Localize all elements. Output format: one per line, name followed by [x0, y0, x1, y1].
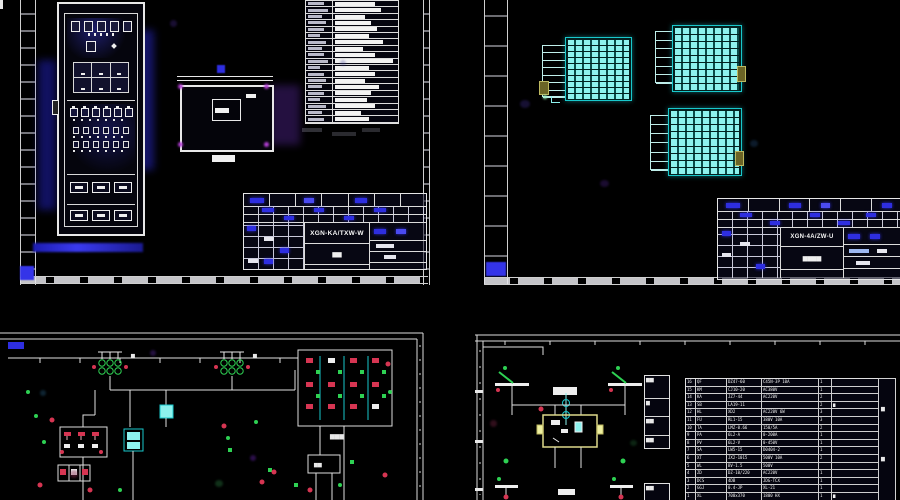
- bom-cell: 3: [686, 478, 695, 485]
- bom-cell: JDG-TCX: [762, 478, 818, 485]
- revision-thin-row: [244, 207, 426, 215]
- switch-unit: [70, 108, 78, 117]
- drawing-model-number: XGN-4A/ZW-U: [781, 228, 843, 247]
- side-cell: ▆▆: [645, 376, 669, 399]
- bom-cell: 2: [819, 425, 831, 432]
- noise-speckle: [600, 180, 609, 187]
- bom-cell: 700x370: [727, 493, 761, 500]
- wire-ref-cell: [306, 84, 333, 89]
- bom-cell: DZ-10/220: [727, 470, 761, 477]
- terminal-table-3[interactable]: [668, 108, 742, 176]
- red-dot: [539, 407, 544, 412]
- sheet-control-schematic[interactable]: ▆ ▆: [0, 330, 445, 500]
- side-cell: ▆▆: [645, 484, 669, 500]
- sheet1-bottom-border: [20, 276, 428, 284]
- vent-slot: [114, 210, 132, 221]
- bracket-lines: [512, 405, 625, 415]
- wire-ref-cell: [306, 91, 333, 96]
- switch-unit: [114, 108, 122, 117]
- bom-cell: JX2-1015: [727, 455, 761, 462]
- bom-cell: AC220V: [762, 394, 818, 401]
- noise-speckle: [250, 455, 256, 461]
- bom-cell: 1: [686, 493, 695, 500]
- panel-door-detail[interactable]: [180, 85, 274, 152]
- bom-cell: C45N-3P 10A: [762, 379, 818, 386]
- terminal-aux-row: [656, 67, 673, 76]
- wire-ref-cell: [306, 39, 333, 44]
- switch-unit: [125, 108, 133, 117]
- wire-value-bar: [335, 98, 367, 102]
- bom-cell: 1: [819, 493, 831, 500]
- bom-cell: RL1-15: [727, 417, 761, 424]
- door-label: [215, 108, 229, 113]
- bom-cell: [832, 387, 878, 394]
- bom-cell: [832, 417, 878, 424]
- faint-note: [362, 128, 380, 132]
- mini-breaker: [113, 127, 119, 134]
- door-blue-square: [217, 65, 225, 73]
- label-box-text: ▆▆: [313, 462, 322, 468]
- noise-speckle: [40, 390, 46, 396]
- wire-value-bar: [335, 91, 371, 95]
- bom-cell: DZ47-60: [727, 379, 761, 386]
- terminal-row: [568, 94, 629, 99]
- bom-cell: 3: [819, 409, 831, 416]
- bom-cell: [832, 409, 878, 416]
- wire-value-bar: [335, 34, 369, 38]
- bus-rail: [8, 358, 298, 427]
- bom-cell: 1: [819, 485, 831, 492]
- bom-cell: 5: [686, 463, 695, 470]
- strip-cell: ▆: [881, 457, 885, 462]
- bom-cell: [832, 485, 878, 492]
- bom-cell: KA: [696, 394, 726, 401]
- yellow-terminal-tab: [735, 151, 744, 166]
- bom-cell: BV-1.5: [727, 463, 761, 470]
- terminal-aux-column: [650, 115, 670, 170]
- magenta-sparkle: [178, 84, 183, 89]
- bom-cell: 500V: [762, 463, 818, 470]
- noise-speckle: [170, 20, 177, 27]
- noise-speckle: [490, 420, 497, 427]
- wire-value-bar: [335, 72, 375, 76]
- bom-cell: [762, 402, 818, 409]
- bom-cell: GGJ: [696, 485, 726, 492]
- noise-speckle: [340, 60, 346, 66]
- sheet-terminal-arrangement[interactable]: XGN-4A/ZW-U ▆▆▆▆: [455, 0, 900, 290]
- bom-cell: 11: [686, 417, 695, 424]
- terminal-row: [675, 28, 739, 34]
- title-right-grid: [370, 223, 426, 269]
- bom-cell: PA: [696, 432, 726, 439]
- green-dot: [504, 459, 509, 464]
- mini-breaker: [93, 141, 99, 148]
- terminal-aux-row: [543, 61, 566, 68]
- cabinet-handle: [52, 100, 59, 115]
- bom-cell: AC380V: [762, 387, 818, 394]
- panel-meter: [92, 63, 109, 77]
- indicator-lamp: [110, 21, 119, 32]
- vent-slot: [92, 210, 110, 221]
- bom-cell: ZD: [696, 470, 726, 477]
- wire-value-bar: [335, 15, 365, 19]
- cabinet-floor-bar: [33, 243, 143, 252]
- red-dot: [92, 365, 96, 369]
- terminal-aux-row: [651, 125, 669, 134]
- bom-cell: 1: [819, 387, 831, 394]
- wire-value-bar: [335, 40, 383, 44]
- green-dot: [621, 459, 626, 464]
- drawing-subtitle: ▆▆: [305, 244, 369, 265]
- bom-table[interactable]: 16QFDZ47-60C45N-3P 10A115KMCJ10-20AC380V…: [685, 378, 879, 500]
- terminal-row: [675, 84, 739, 90]
- indicator-lamp: [97, 21, 106, 32]
- drawing-subtitle: ▆▆▆▆: [781, 247, 843, 270]
- bom-cell: [832, 463, 878, 470]
- bom-cell: 1: [819, 440, 831, 447]
- noise-speckle: [520, 100, 530, 108]
- wire-ref-cell: [306, 116, 333, 121]
- bom-cell: 13: [686, 402, 695, 409]
- cabinet-indicator-section: [67, 18, 135, 58]
- bom-cell: XL: [696, 493, 726, 500]
- bom-cell: 2: [819, 402, 831, 409]
- bom-cell: FU: [696, 417, 726, 424]
- noise-speckle: [630, 440, 637, 446]
- small-label-box[interactable]: ▆▆: [308, 455, 340, 473]
- bom-cell: PV: [696, 440, 726, 447]
- bom-cell: 150/5A: [762, 425, 818, 432]
- terminal-row: [675, 70, 739, 76]
- terminal-row: [671, 154, 739, 160]
- terminal-aux-row: [651, 143, 669, 152]
- cabinet-meter-section: [67, 62, 135, 98]
- noise-speckle: [215, 480, 223, 487]
- bom-cell: ▆: [832, 493, 878, 500]
- terminal-row: [568, 76, 629, 81]
- cyan-contact-pair[interactable]: [124, 429, 143, 451]
- indicator-lamp: [123, 21, 132, 32]
- terminal-row: [568, 58, 629, 63]
- panel-meter: [111, 78, 128, 92]
- bom-cell: 500V 10A: [762, 455, 818, 462]
- red-dot: [246, 365, 250, 369]
- hook-mark: [551, 96, 560, 103]
- wire-ref-cell: [306, 52, 333, 57]
- door-inner-rect: [212, 99, 241, 121]
- bom-cell: XT: [696, 455, 726, 462]
- bom-cell: 6: [686, 455, 695, 462]
- panel-meter: [92, 78, 109, 92]
- terminal-row: [671, 132, 739, 138]
- wire-value-bar: [335, 47, 363, 51]
- transformer-symbol[interactable]: ▆: [92, 352, 135, 374]
- bom-cell: 3: [819, 417, 831, 424]
- terminal-row: [675, 77, 739, 83]
- bom-cell: [819, 463, 831, 470]
- terminal-row: [671, 139, 739, 145]
- wire-ref-cell: [306, 59, 333, 64]
- cabinet-inner-frame: [64, 13, 138, 227]
- terminal-aux-row: [543, 53, 566, 60]
- bom-cell: 7: [686, 447, 695, 454]
- bom-cell: 4: [686, 470, 695, 477]
- bom-cell: JZ7-44: [727, 394, 761, 401]
- bom-cell: ▆: [832, 402, 878, 409]
- wire-ref-cell: [306, 104, 333, 109]
- bom-cell: 1: [819, 379, 831, 386]
- terminal-aux-row: [651, 116, 669, 125]
- faint-note: [332, 132, 356, 136]
- bom-cell: [832, 478, 878, 485]
- bom-cell: 1: [819, 478, 831, 485]
- side-table-b[interactable]: ▆▆: [644, 483, 670, 500]
- wire-value-bar: [335, 79, 365, 83]
- wire-value-bar: [335, 104, 375, 108]
- bom-cell: 0-450V: [762, 440, 818, 447]
- title-left-grid: [718, 228, 781, 278]
- bom-cell: 380V 10A: [762, 417, 818, 424]
- bom-cell: QF: [696, 379, 726, 386]
- wire-ref-cell: [306, 33, 333, 38]
- revision-thin-row: [718, 212, 900, 220]
- mini-breaker: [83, 127, 89, 134]
- terminal-table-1[interactable]: [565, 37, 632, 101]
- disconnect-switch[interactable]: [495, 366, 529, 405]
- cabinet-switch-section: [67, 104, 135, 174]
- noise-speckle: [150, 350, 156, 356]
- green-sparkle: [543, 95, 547, 99]
- terminal-row: [671, 168, 739, 174]
- yellow-device-box[interactable]: [537, 415, 603, 447]
- terminal-aux-row: [656, 49, 673, 58]
- mini-breaker: [73, 127, 79, 134]
- terminal-aux-row: [656, 58, 673, 67]
- noise-speckle: [70, 470, 78, 478]
- panel-meter: [74, 63, 91, 77]
- blue-marker: [8, 342, 24, 349]
- cabinet-front-view[interactable]: [57, 2, 145, 236]
- terminal-table-2[interactable]: [672, 25, 742, 92]
- yellow-terminal-tab: [737, 66, 746, 82]
- wire-ref-cell: [306, 1, 333, 6]
- bom-cell: [832, 394, 878, 401]
- bom-cell: 0.4-JP: [727, 485, 761, 492]
- bom-cell: XL-21: [762, 485, 818, 492]
- strip-cell: ▆: [881, 407, 885, 412]
- transformer-symbol[interactable]: ▆: [214, 352, 257, 374]
- bom-cell: AC220V 6W: [762, 409, 818, 416]
- terminal-aux-row: [656, 32, 673, 41]
- faint-note: [302, 128, 322, 132]
- cabinet-vent-section2: [67, 207, 135, 229]
- wire-ref-cell: [306, 65, 333, 70]
- mini-breaker: [93, 127, 99, 134]
- bom-cell: TA: [696, 425, 726, 432]
- wire-ref-cell: [306, 71, 333, 76]
- side-cell: ▆: [645, 399, 669, 417]
- title-block-sheet2[interactable]: XGN-4A/ZW-U ▆▆▆▆: [717, 198, 900, 280]
- side-cell: ▆▆: [645, 436, 669, 451]
- wire-ref-cell: [306, 46, 333, 51]
- border-nubs: [475, 390, 483, 491]
- bom-cell: [832, 455, 878, 462]
- bom-cell: LA19-11: [727, 402, 761, 409]
- bom-cell: 1800 HX: [762, 493, 818, 500]
- wire-value-bar: [335, 8, 381, 12]
- red-dot: [124, 365, 128, 369]
- terminal-aux-row: [656, 75, 673, 84]
- sheet-cabinet-layout[interactable]: XGN-KA/TXW-W ▆▆: [0, 0, 440, 290]
- door-top-line: [177, 76, 273, 77]
- bom-cell: 2: [819, 394, 831, 401]
- wire-ref-cell: [306, 110, 333, 115]
- wire-value-bar: [335, 27, 377, 31]
- wire-value-bar: [335, 117, 369, 121]
- bom-cell: 1: [819, 470, 831, 477]
- bom-cell: 1: [819, 432, 831, 439]
- t-drop-symbol[interactable]: [495, 477, 518, 500]
- bom-cell: WL: [696, 463, 726, 470]
- wire-table[interactable]: [305, 0, 399, 124]
- wire-value-bar: [335, 53, 375, 57]
- wire-ref-cell: [306, 14, 333, 19]
- terminal-row: [675, 49, 739, 55]
- cabinet-vent-section: [67, 178, 135, 202]
- bom-cell: 2: [819, 455, 831, 462]
- mini-breaker: [123, 127, 129, 134]
- indicator-lamp: [84, 21, 93, 32]
- title-block-sheet1[interactable]: XGN-KA/TXW-W ▆▆: [243, 193, 427, 270]
- terminal-aux-row: [656, 41, 673, 50]
- terminal-row: [671, 111, 739, 117]
- bom-cell: SB: [696, 402, 726, 409]
- terminal-aux-row: [651, 162, 669, 171]
- terminal-row: [671, 118, 739, 124]
- relay-box[interactable]: [60, 427, 107, 457]
- wire-table-row: [306, 116, 398, 122]
- mini-breaker: [103, 127, 109, 134]
- terminal-aux-row: [543, 68, 566, 75]
- mini-breaker: [73, 141, 79, 148]
- red-dot: [214, 365, 218, 369]
- door-top-line2: [177, 80, 273, 81]
- wire-value-bar: [335, 21, 371, 25]
- bom-cell: 6L2-V: [727, 440, 761, 447]
- door-tag: [246, 94, 256, 98]
- door-bottom-label: [212, 155, 235, 162]
- bom-cell: [832, 447, 878, 454]
- bom-cell: LW5-15: [727, 447, 761, 454]
- wire-ref-cell: [306, 78, 333, 83]
- wire-ref-cell: [306, 20, 333, 25]
- bom-cell: [832, 470, 878, 477]
- magenta-sparkle: [264, 84, 269, 89]
- revision-thin-row: [718, 220, 900, 228]
- terminal-row: [671, 161, 739, 167]
- terminal-aux-row: [543, 46, 566, 53]
- terminal-row: [568, 52, 629, 57]
- t-drop-symbol[interactable]: [610, 477, 633, 500]
- terminal-row: [675, 56, 739, 62]
- yellow-terminal-tab: [539, 81, 549, 95]
- switch-unit: [81, 108, 89, 117]
- magenta-sparkle: [178, 142, 183, 147]
- bom-cell: [832, 440, 878, 447]
- side-cell: ▆▆: [645, 417, 669, 436]
- small-device: [86, 41, 96, 52]
- bom-cell: DCS: [696, 478, 726, 485]
- meter-grid: [73, 62, 129, 93]
- bom-cell: HL: [696, 409, 726, 416]
- mini-breaker: [123, 141, 129, 148]
- terminal-row: [671, 147, 739, 153]
- bom-cell: 15: [686, 387, 695, 394]
- marker-triangle: [111, 43, 117, 49]
- bom-cell: [832, 432, 878, 439]
- terminal-row: [568, 88, 629, 93]
- bom-cell: D0404-2: [762, 447, 818, 454]
- switch-unit: [92, 108, 100, 117]
- revision-row: [718, 199, 900, 212]
- bom-cell: 1: [819, 447, 831, 454]
- vent-slot: [70, 182, 88, 193]
- disconnect-switch[interactable]: [608, 366, 642, 405]
- indicator-lamp: [71, 21, 80, 32]
- panel-meter: [74, 78, 91, 92]
- bom-cell: CJ10-20: [727, 387, 761, 394]
- title-right-grid: [844, 228, 900, 278]
- cyan-relay[interactable]: [160, 405, 173, 418]
- noise-speckle: [750, 140, 758, 147]
- terminal-aux-row: [651, 153, 669, 162]
- switch-unit: [103, 108, 111, 117]
- wire-ref-cell: [306, 27, 333, 32]
- edge-fragment: [0, 0, 3, 9]
- revision-row: [244, 194, 426, 207]
- transformer-label: ▆: [252, 353, 257, 359]
- grid-box-label: ▆▆▆: [329, 433, 344, 440]
- wire-ref-cell: [306, 97, 333, 102]
- bom-cell: 0-200A: [762, 432, 818, 439]
- signal-grid-box[interactable]: [298, 350, 392, 426]
- bom-cell: SA: [696, 447, 726, 454]
- wire-value-bar: [335, 66, 369, 70]
- terminal-row: [675, 35, 739, 41]
- mini-breaker: [103, 141, 109, 148]
- bom-right-strip: ▆ ▆: [878, 378, 896, 500]
- white-label-bar: [558, 489, 575, 495]
- wire-value-bar: [335, 2, 375, 6]
- wire-value-bar: [335, 111, 361, 115]
- side-table-a[interactable]: ▆▆ ▆ ▆▆ ▆▆: [644, 375, 670, 449]
- terminal-row: [675, 42, 739, 48]
- white-label-bar: [553, 387, 577, 395]
- bom-cell: [832, 379, 878, 386]
- bom-cell: [832, 425, 878, 432]
- vent-slot: [114, 182, 132, 193]
- magenta-sparkle: [264, 142, 269, 147]
- bom-cell: LMZ-0.66: [727, 425, 761, 432]
- terminal-row: [568, 64, 629, 69]
- transformer-label: ▆: [130, 353, 135, 359]
- bom-cell: 9: [686, 432, 695, 439]
- blue-corner-block: [486, 262, 506, 276]
- terminal-row: [675, 63, 739, 69]
- bom-cell: 12: [686, 409, 695, 416]
- bom-cell: XD2: [727, 409, 761, 416]
- cad-drawing-canvas: XGN-KA/TXW-W ▆▆: [0, 0, 900, 500]
